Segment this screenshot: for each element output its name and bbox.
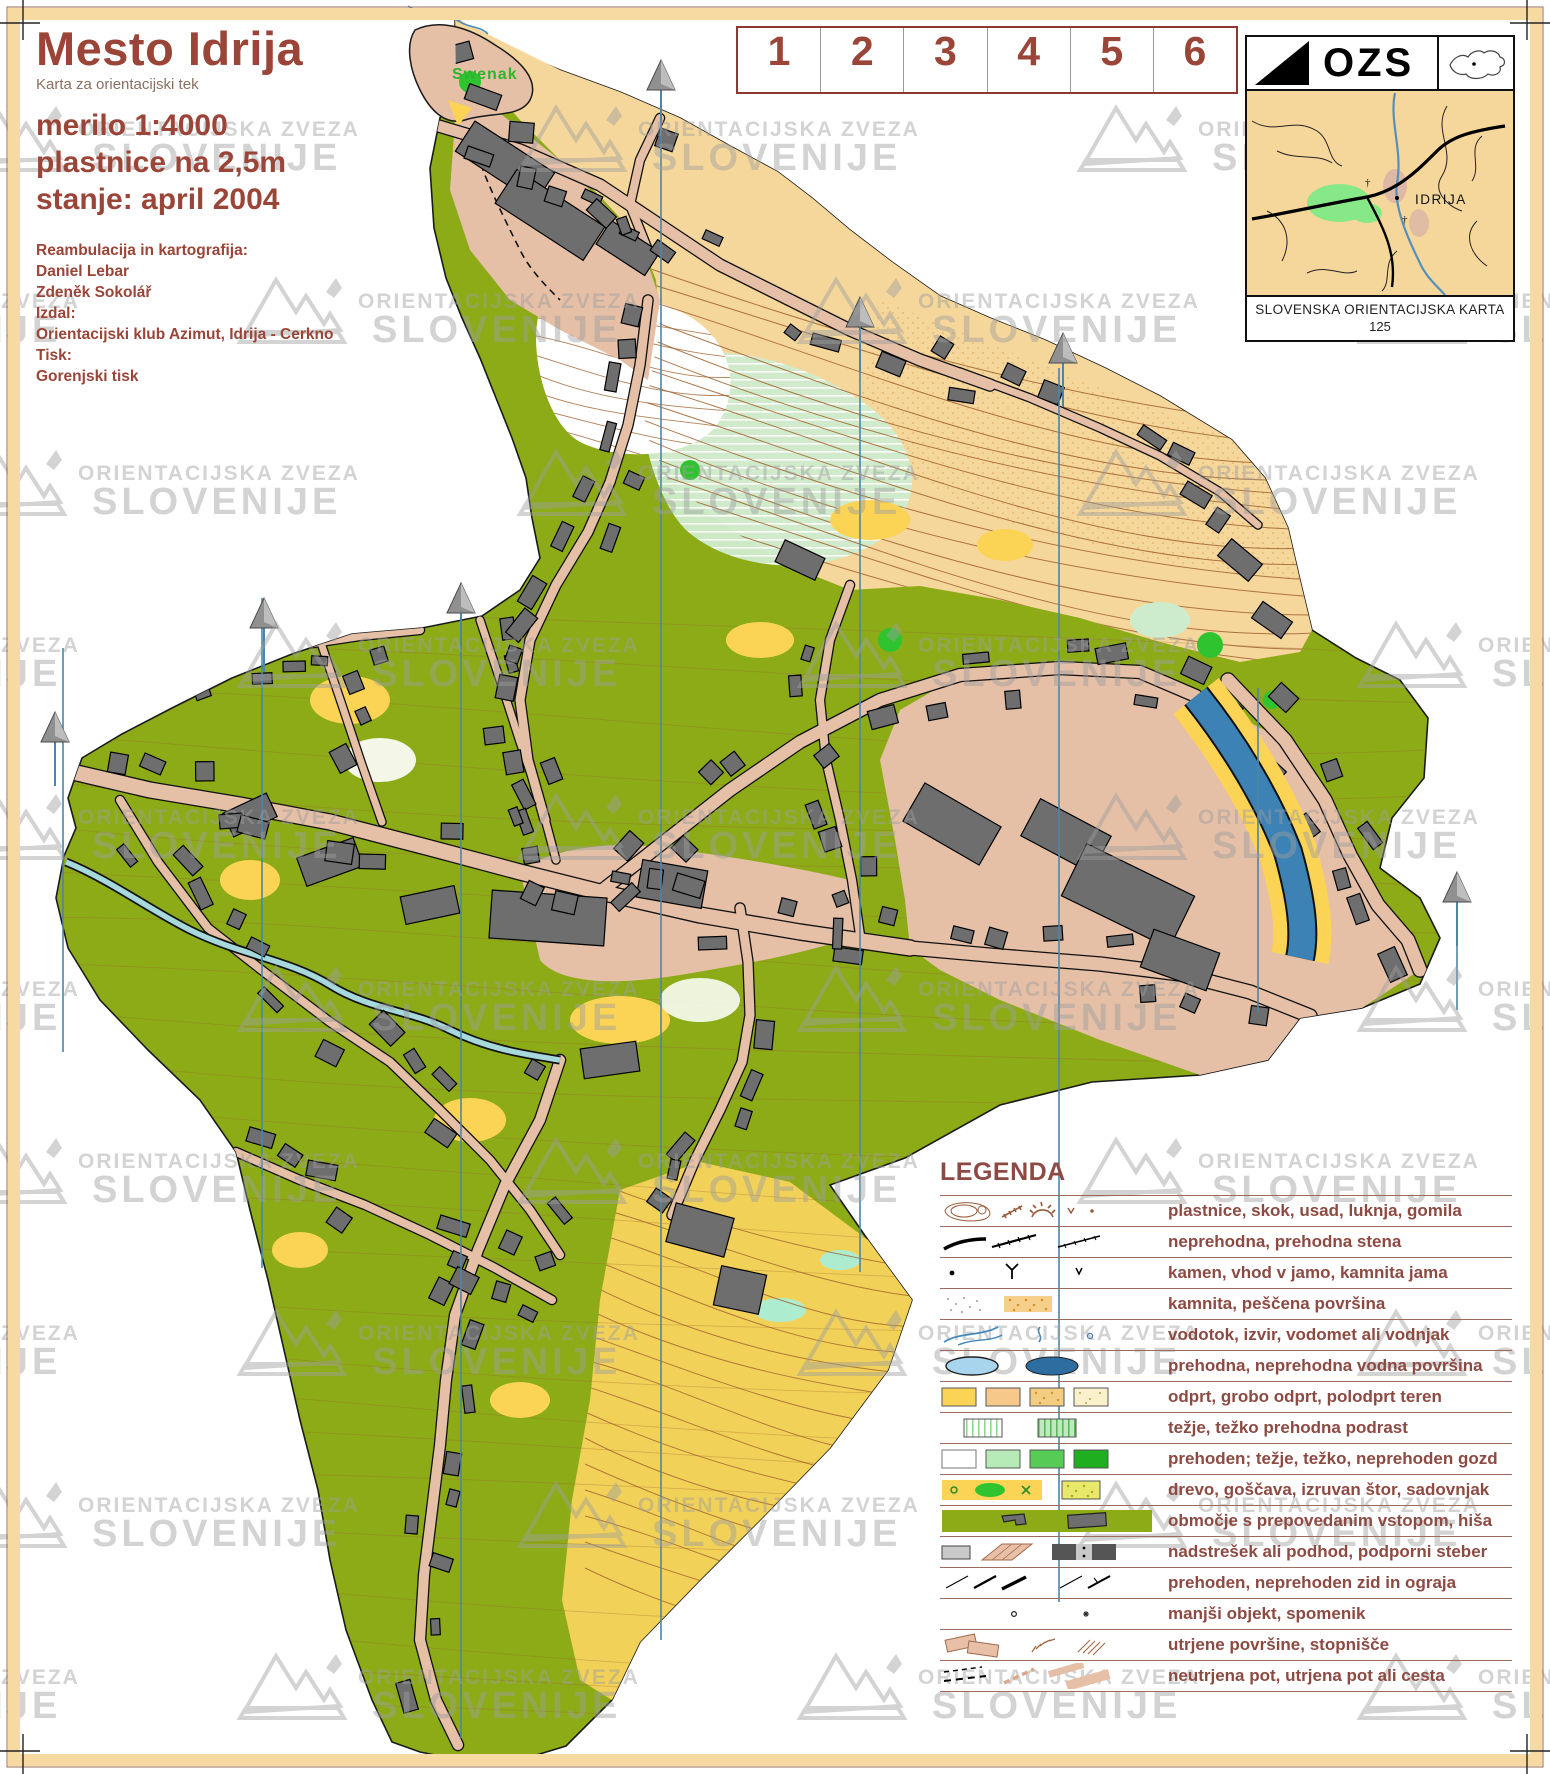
credit-line-2: Zdeněk Sokolář xyxy=(36,282,376,303)
legend-symbol-tree-thicket xyxy=(940,1477,1168,1503)
control-cell-6: 6 xyxy=(1154,28,1236,92)
legend: LEGENDA plastnice xyxy=(940,1158,1512,1692)
svg-text:SLOVENIJE: SLOVENIJE xyxy=(372,997,621,1039)
legend-symbol-forbidden-area xyxy=(940,1508,1168,1534)
ozs-abbr: OZS xyxy=(1323,41,1437,86)
legend-symbol-stony-ground xyxy=(940,1291,1168,1317)
svg-text:SLOVENIJE: SLOVENIJE xyxy=(932,653,1181,695)
control-cell-3: 3 xyxy=(904,28,987,92)
credit-line-6: Gorenjski tisk xyxy=(36,366,376,387)
map-status-date: stanje: april 2004 xyxy=(36,181,376,218)
legend-symbol-canopy xyxy=(940,1539,1168,1565)
svg-text:SLOVENIJE: SLOVENIJE xyxy=(372,653,621,695)
legend-row-forest: prehoden; težje, težko, neprehoden gozd xyxy=(940,1443,1512,1474)
ozs-sheet-number: 125 xyxy=(1249,319,1511,334)
credit-line-5: Tisk: xyxy=(36,345,376,366)
credit-line-1: Daniel Lebar xyxy=(36,261,376,282)
legend-row-walls: neprehodna, prehodna stena xyxy=(940,1226,1512,1257)
map-title: Mesto Idrija xyxy=(36,24,376,73)
svg-text:SLOVENIJE: SLOVENIJE xyxy=(92,481,341,523)
legend-symbol-paved xyxy=(940,1632,1168,1658)
legend-row-undergrowth: težje, težko prehodna podrast xyxy=(940,1412,1512,1443)
legend-symbol-walls xyxy=(940,1229,1168,1255)
legend-row-open-terrain: odprt, grobo odprt, polodprt teren xyxy=(940,1381,1512,1412)
legend-row-contours: plastnice, skok, usad, luknja, gomila xyxy=(940,1195,1512,1226)
svg-text:SLOVENIJE: SLOVENIJE xyxy=(652,1169,901,1211)
map-sheet: ORIENTACIJSKA ZVEZASLOVENIJEORIENTACIJSK… xyxy=(0,0,1550,1774)
svg-text:SLOVENIJE: SLOVENIJE xyxy=(932,309,1181,351)
legend-row-canopy: nadstrešek ali podhod, podporni steber xyxy=(940,1536,1512,1567)
credit-line-0: Reambulacija in kartografija: xyxy=(36,240,376,261)
credit-line-3: Izdal: xyxy=(36,303,376,324)
inset-city-label: IDRIJA xyxy=(1415,192,1467,207)
legend-row-paths: neutrjena pot, utrjena pot ali cesta xyxy=(940,1660,1512,1691)
svg-text:SLOVENIJE: SLOVENIJE xyxy=(1212,481,1461,523)
control-cell-4: 4 xyxy=(988,28,1071,92)
svg-text:SLOVENIJE: SLOVENIJE xyxy=(932,997,1181,1039)
legend-row-stones: kamen, vhod v jamo, kamnita jama xyxy=(940,1257,1512,1288)
control-card: 1 2 3 4 5 6 xyxy=(736,26,1238,94)
map-contour-interval: plastnice na 2,5m xyxy=(36,144,376,181)
legend-symbol-water-areas xyxy=(940,1353,1168,1379)
svg-text:†: † xyxy=(1365,177,1371,189)
svg-text:SLOVENIJE: SLOVENIJE xyxy=(652,1513,901,1555)
ozs-caption: SLOVENSKA ORIENTACIJSKA KARTA 125 xyxy=(1247,295,1513,340)
legend-symbol-open-terrain xyxy=(940,1384,1168,1410)
legend-symbol-small-object xyxy=(940,1601,1168,1627)
map-scale: merilo 1:4000 xyxy=(36,107,376,144)
title-block: Mesto Idrija Karta za orientacijski tek … xyxy=(36,24,376,387)
svg-text:SLOVENIJE: SLOVENIJE xyxy=(372,309,621,351)
credit-line-4: Orientacijski klub Azimut, Idrija - Cerk… xyxy=(36,324,376,345)
svg-text:SLOVENIJE: SLOVENIJE xyxy=(652,825,901,867)
legend-symbol-water-lines xyxy=(940,1322,1168,1348)
ozs-caption-text: SLOVENSKA ORIENTACIJSKA KARTA xyxy=(1249,302,1511,317)
control-cell-2: 2 xyxy=(821,28,904,92)
legend-row-small-object: manjši objekt, spomenik xyxy=(940,1598,1512,1629)
legend-row-tree-thicket: drevo, goščava, izruvan štor, sadovnjak xyxy=(940,1474,1512,1505)
svg-text:SLOVENIJE: SLOVENIJE xyxy=(652,481,901,523)
legend-symbol-forest xyxy=(940,1446,1168,1472)
legend-symbol-walls-fences xyxy=(940,1570,1168,1596)
legend-row-water-areas: prehodna, neprehodna vodna površina xyxy=(940,1350,1512,1381)
svg-text:†: † xyxy=(1402,214,1408,226)
svg-text:SLOVENIJE: SLOVENIJE xyxy=(1212,825,1461,867)
hill-name-label: Swenak xyxy=(452,66,518,84)
legend-row-water-lines: vodotok, izvir, vodomet ali vodnjak xyxy=(940,1319,1512,1350)
svg-text:SLOVENIJE: SLOVENIJE xyxy=(372,1685,621,1727)
control-cell-5: 5 xyxy=(1071,28,1154,92)
svg-text:SLOVENIJE: SLOVENIJE xyxy=(92,1169,341,1211)
slovenia-outline-icon xyxy=(1437,37,1513,89)
ozs-inset-map: † † IDRIJA xyxy=(1247,91,1513,295)
control-cell-1: 1 xyxy=(738,28,821,92)
legend-symbol-paths xyxy=(940,1663,1168,1689)
legend-symbol-stones xyxy=(940,1260,1168,1286)
legend-row-stony-ground: kamnita, peščena površina xyxy=(940,1288,1512,1319)
svg-text:SLOVENIJE: SLOVENIJE xyxy=(372,1341,621,1383)
svg-text:SLOVENIJE: SLOVENIJE xyxy=(652,137,901,179)
ozs-header: OZS xyxy=(1247,37,1513,91)
legend-symbol-contours xyxy=(940,1198,1168,1224)
legend-row-walls-fences: prehoden, neprehoden zid in ograja xyxy=(940,1567,1512,1598)
legend-heading: LEGENDA xyxy=(940,1158,1512,1187)
ozs-triangle-logo-icon xyxy=(1253,39,1313,87)
credits-block: Reambulacija in kartografija:Daniel Leba… xyxy=(36,240,376,387)
legend-symbol-undergrowth xyxy=(940,1415,1168,1441)
svg-text:SLOVENIJE: SLOVENIJE xyxy=(92,825,341,867)
ozs-panel: OZS xyxy=(1245,35,1515,342)
marsh-patch xyxy=(754,1298,806,1322)
svg-text:SLOVENIJE: SLOVENIJE xyxy=(92,1513,341,1555)
legend-row-paved: utrjene površine, stopnišče xyxy=(940,1629,1512,1660)
map-subtitle: Karta za orientacijski tek xyxy=(36,76,376,93)
marsh-patch xyxy=(820,1250,860,1270)
legend-row-forbidden-area: območje s prepovedanim vstopom, hiša xyxy=(940,1505,1512,1536)
